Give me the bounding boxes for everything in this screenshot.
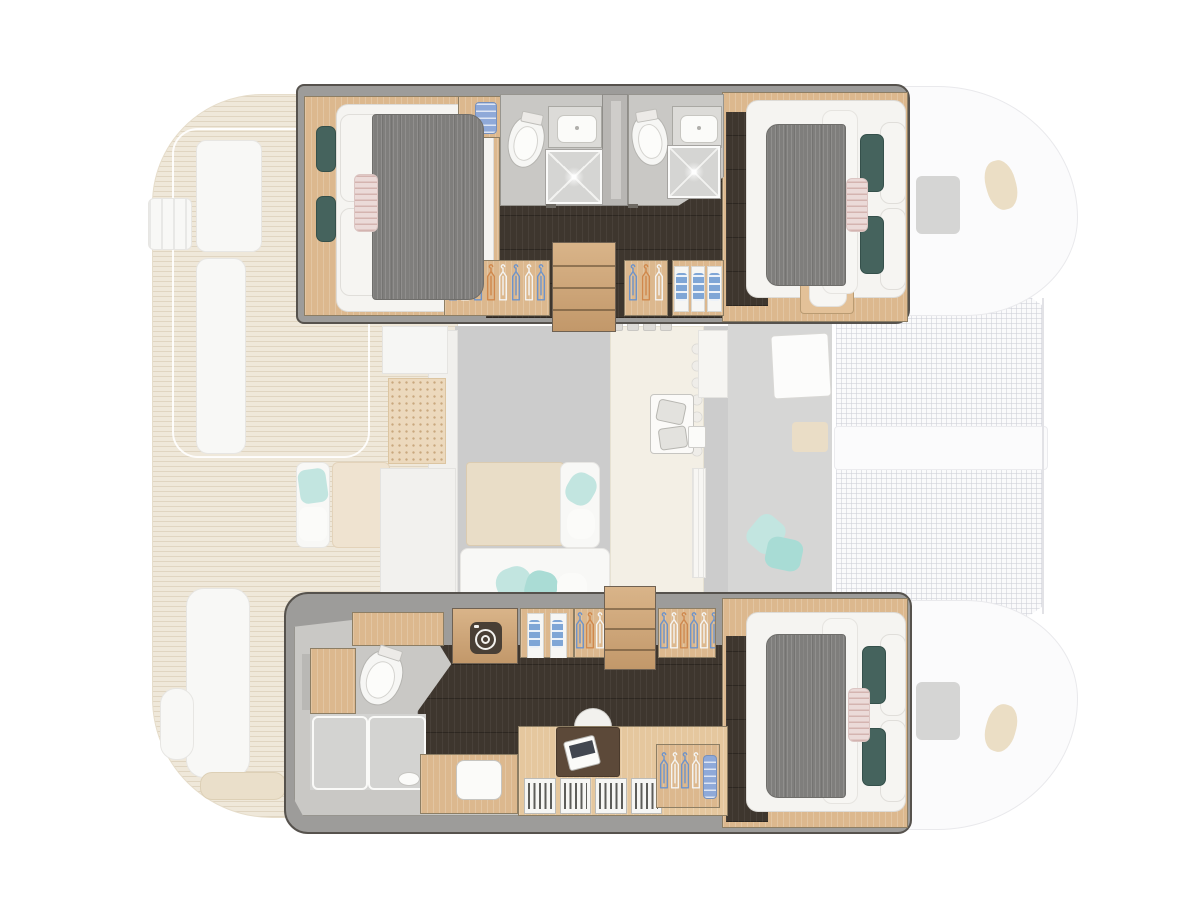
washer-drum-inner bbox=[481, 635, 490, 644]
door-jamb bbox=[628, 204, 638, 208]
folded-shirt bbox=[552, 620, 563, 648]
bow-hatch bbox=[916, 682, 960, 740]
foredeck-tray bbox=[792, 422, 828, 452]
shower-glass-panel bbox=[312, 716, 368, 790]
clothes-hanger-icon bbox=[709, 612, 715, 652]
folded-clothes-stack bbox=[550, 613, 567, 658]
clothes-hanger-icon bbox=[670, 752, 680, 792]
hanger-rail bbox=[659, 749, 701, 808]
clothes-hanger-icon bbox=[641, 264, 651, 304]
stair-tread bbox=[553, 265, 615, 267]
bathroom-vanity bbox=[310, 648, 356, 714]
shower-head bbox=[398, 772, 420, 786]
folded-clothes-drawers bbox=[672, 260, 724, 316]
clothes-hanger-icon bbox=[699, 612, 709, 652]
companionway-stairs bbox=[604, 586, 656, 670]
teal-cushion bbox=[561, 468, 601, 510]
clothes-hanger-icon bbox=[654, 264, 664, 304]
books-row bbox=[564, 783, 588, 809]
vanity-counter bbox=[672, 106, 722, 148]
bookshelf-cell bbox=[595, 778, 627, 814]
accent-pillow bbox=[848, 688, 870, 742]
bookshelf-cell bbox=[524, 778, 556, 814]
sink-basin bbox=[557, 115, 597, 143]
trampoline-center-beam bbox=[834, 426, 1048, 470]
clothes-hanger-icon bbox=[585, 612, 595, 652]
hanger-rail bbox=[659, 609, 715, 660]
bookshelf-cell bbox=[560, 778, 592, 814]
folded-shirt bbox=[529, 620, 540, 648]
clothes-hanger-icon bbox=[659, 612, 669, 652]
stair-tread bbox=[553, 309, 615, 311]
sink-bowl bbox=[658, 425, 689, 451]
bathroom-shelf bbox=[352, 612, 444, 646]
stern-lounge-cushion bbox=[160, 688, 194, 760]
divider-mirror bbox=[611, 101, 621, 199]
headboard-panel bbox=[316, 196, 336, 242]
white-cushion bbox=[567, 509, 595, 539]
folded-clothes bbox=[673, 261, 723, 317]
folded-clothes-stack bbox=[691, 266, 706, 312]
clothes-hanger-icon bbox=[575, 612, 585, 652]
clothes-hanger-icon bbox=[689, 612, 699, 652]
stair-tread bbox=[605, 608, 655, 610]
shower-stall bbox=[668, 146, 720, 198]
stern-lounge-seat bbox=[186, 588, 250, 778]
stair-tread bbox=[553, 287, 615, 289]
head-divider-column bbox=[602, 94, 628, 206]
clothes-hanger-icon bbox=[680, 752, 690, 792]
accent-pillow bbox=[846, 178, 868, 232]
clothes-hanger-icon bbox=[536, 264, 546, 304]
bathroom-sink bbox=[456, 760, 502, 800]
saloon-chaise bbox=[560, 462, 600, 548]
hanging-wardrobe bbox=[658, 608, 716, 658]
hanging-wardrobe bbox=[624, 260, 668, 316]
saloon-table bbox=[466, 462, 564, 546]
washing-machine-icon bbox=[470, 622, 502, 654]
swim-platform-ladder bbox=[148, 198, 192, 250]
white-cushion bbox=[299, 507, 327, 541]
door-jamb bbox=[546, 204, 556, 208]
companionway-stairs bbox=[552, 242, 616, 332]
stair-tread bbox=[605, 628, 655, 630]
shower-stall bbox=[546, 150, 602, 204]
clothes-hanger-icon bbox=[628, 264, 638, 304]
bow-hatch bbox=[916, 176, 960, 234]
teal-cushion bbox=[297, 467, 329, 505]
galley-counter-strip bbox=[692, 468, 706, 578]
clothes-hanger-icon bbox=[524, 264, 534, 304]
stair-tread bbox=[605, 649, 655, 651]
folded-shirt bbox=[676, 273, 687, 301]
washer-control-dot bbox=[474, 625, 479, 628]
hanging-towel bbox=[703, 755, 717, 799]
clothes-hanger-icon bbox=[659, 752, 669, 792]
accent-pillow bbox=[354, 174, 378, 232]
desk-wardrobe bbox=[656, 744, 720, 808]
clothes-hanger-icon bbox=[486, 264, 496, 304]
folded-clothes-stack bbox=[527, 613, 544, 658]
vanity-counter bbox=[548, 106, 602, 148]
catamaran-floorplan bbox=[0, 0, 1200, 900]
laptop-screen bbox=[569, 740, 595, 758]
fridge-door bbox=[698, 330, 728, 398]
cockpit-table bbox=[196, 140, 262, 252]
clothes-hanger-icon bbox=[498, 264, 508, 304]
folded-clothes bbox=[521, 609, 573, 658]
clothes-hanger-icon bbox=[691, 752, 701, 792]
folded-clothes-stack bbox=[674, 266, 689, 312]
walk-in-shower bbox=[310, 714, 426, 790]
books-row bbox=[599, 783, 623, 809]
clothes-hanger-icon bbox=[511, 264, 521, 304]
grey-duvet bbox=[372, 114, 484, 300]
galley-oven bbox=[688, 426, 706, 448]
cockpit-bench bbox=[196, 258, 246, 454]
hanging-wardrobe bbox=[574, 608, 608, 658]
stern-step-board bbox=[200, 772, 286, 800]
forestay-bridle bbox=[1042, 298, 1044, 614]
sink-basin bbox=[680, 115, 718, 143]
folded-shirt bbox=[709, 273, 720, 301]
clothes-hanger-icon bbox=[669, 612, 679, 652]
folded-shirt bbox=[693, 273, 704, 301]
deck-hatch bbox=[770, 333, 831, 400]
clothes-hanger-icon bbox=[679, 612, 689, 652]
bookshelf bbox=[524, 778, 662, 814]
hanger-rail bbox=[625, 261, 667, 318]
aft-bench bbox=[296, 462, 330, 548]
hanger-rail bbox=[575, 609, 607, 660]
media-panel bbox=[382, 326, 448, 374]
books-row bbox=[528, 783, 552, 809]
folded-clothes-shelf bbox=[520, 608, 574, 658]
headboard-panel bbox=[316, 126, 336, 172]
speaker-dot-cabinet bbox=[388, 378, 446, 464]
sink-bowl bbox=[655, 398, 687, 425]
vanity-mirror bbox=[302, 654, 310, 710]
grey-duvet bbox=[766, 634, 846, 798]
grey-duvet bbox=[766, 124, 846, 286]
books-row bbox=[635, 783, 659, 809]
folded-clothes-stack bbox=[707, 266, 722, 312]
